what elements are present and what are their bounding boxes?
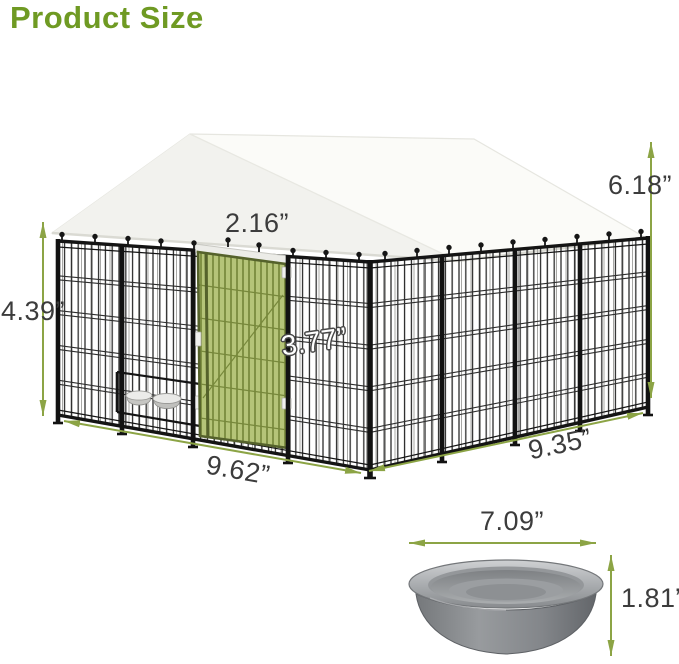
right-wire-panel — [370, 238, 648, 470]
steel-bowl — [409, 560, 603, 654]
dim-canopy-height-label: 6.18” — [608, 172, 672, 199]
kennel-door — [193, 244, 291, 448]
dim-bowl-height-label: 1.81” — [621, 585, 679, 612]
product-size-figure: Product Size — [0, 0, 679, 664]
canopy-roof — [52, 134, 646, 261]
dim-bowl-diameter-label: 7.09” — [480, 508, 544, 535]
dim-panel-height-label: 4.39” — [1, 298, 65, 325]
dim-door-width-label: 2.16” — [215, 210, 299, 237]
